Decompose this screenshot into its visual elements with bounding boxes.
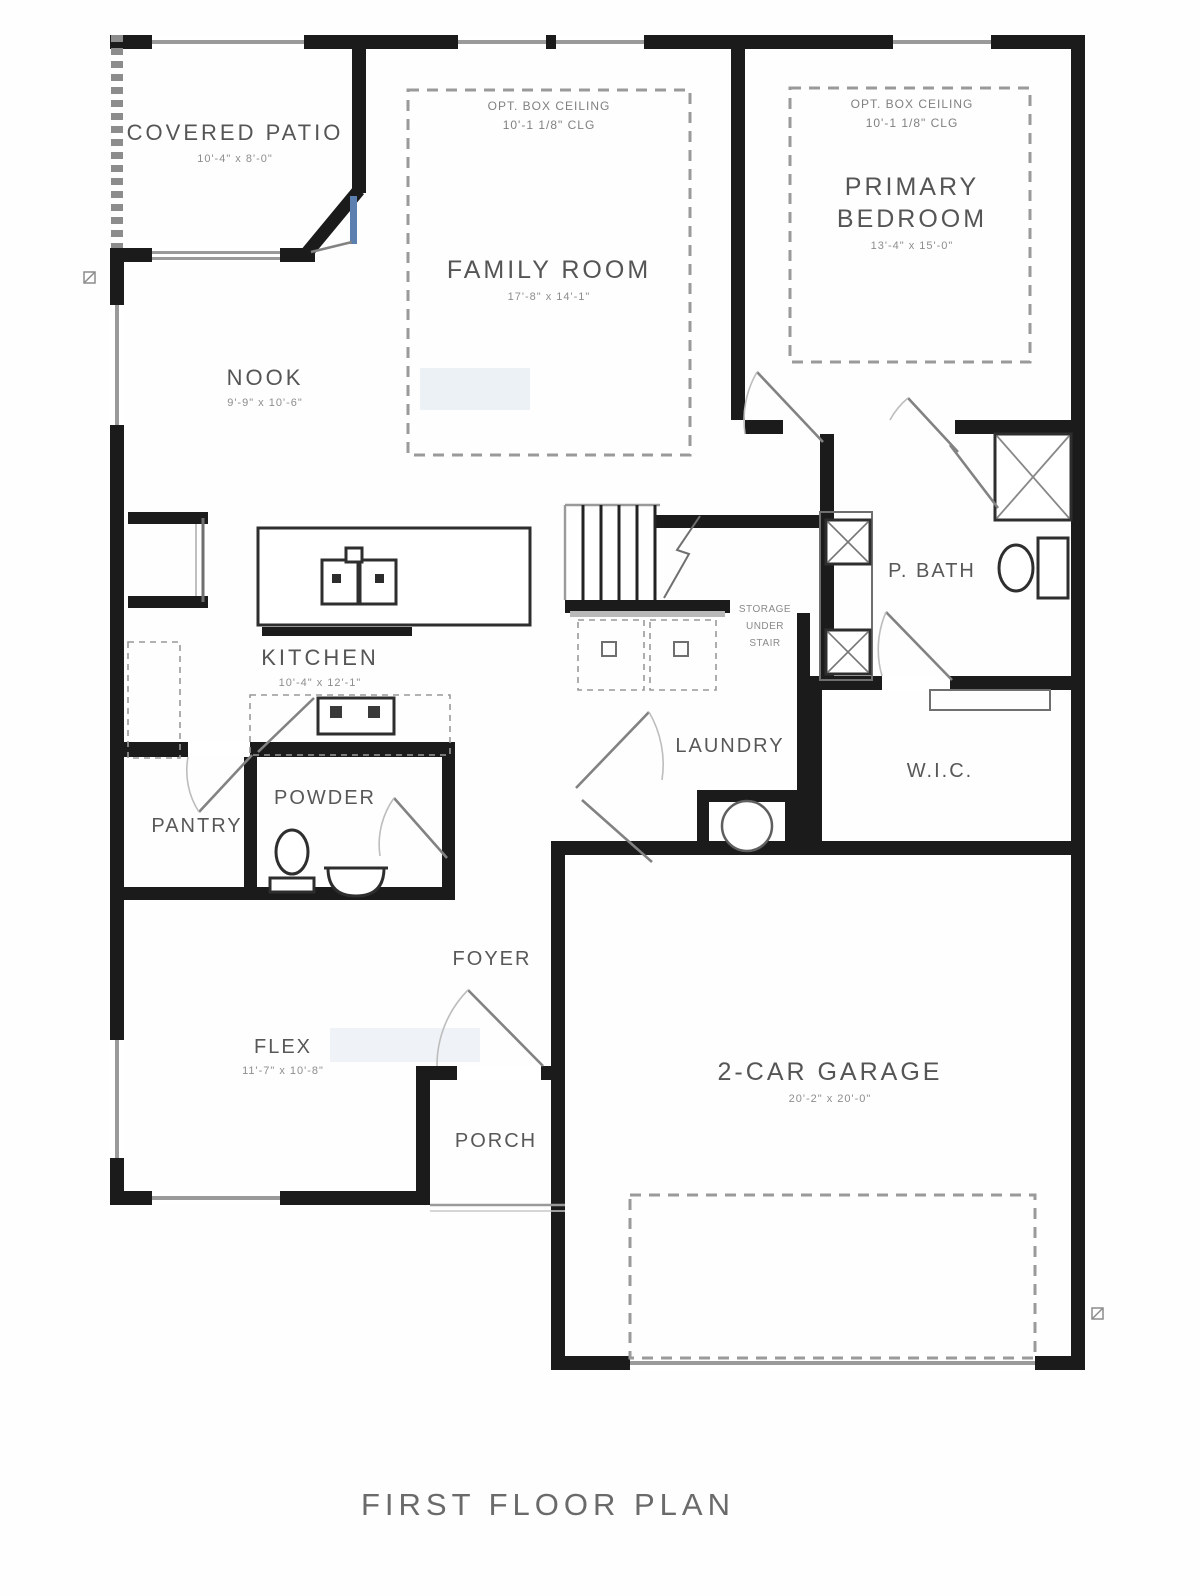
window-flex xyxy=(115,1040,119,1158)
pantry-label: PANTRY xyxy=(151,815,242,837)
flex-label: FLEX xyxy=(254,1036,312,1058)
powder-toilet xyxy=(270,830,314,892)
laundry-fixtures xyxy=(570,611,725,690)
wall-right xyxy=(1071,35,1085,1370)
laundry-counter xyxy=(570,611,725,617)
garage-door-outline xyxy=(630,1195,1035,1358)
range xyxy=(318,698,394,734)
pantry-door-opening xyxy=(188,742,250,757)
garage-door-header xyxy=(630,1361,1035,1365)
shower-door xyxy=(950,445,998,508)
covered-patio-structure xyxy=(110,35,366,262)
wall-garage-left xyxy=(551,855,565,1370)
window-family-left xyxy=(458,40,546,44)
covered-patio-label: COVERED PATIO xyxy=(127,120,344,145)
vanity-sink-2 xyxy=(826,630,870,674)
wic-shelf xyxy=(930,690,1050,710)
primary-bedroom-label-2: BEDROOM xyxy=(837,205,987,233)
kitchen-fixtures xyxy=(128,512,530,758)
pantry-door xyxy=(187,755,252,812)
patio-door-leaf xyxy=(350,196,357,244)
window-flex-front xyxy=(152,1196,280,1200)
nook-label: NOOK xyxy=(227,365,304,390)
nook-dim: 9'-9" x 10'-6" xyxy=(227,397,303,409)
wic-label: W.I.C. xyxy=(907,760,973,782)
primary-bedroom-label-1: PRIMARY xyxy=(845,173,979,201)
dryer-mark xyxy=(674,642,688,656)
primary-ceiling-note-1: OPT. BOX CEILING xyxy=(851,97,974,111)
garage-dim: 20'-2" x 20'-0" xyxy=(789,1093,872,1105)
section-marker-left xyxy=(84,272,95,283)
window-patio-top xyxy=(152,40,304,44)
wall-patio-right xyxy=(352,35,366,193)
water-heater xyxy=(722,801,772,851)
p-bath-label: P. BATH xyxy=(888,560,976,582)
stair-break-line xyxy=(664,516,700,598)
powder-label: POWDER xyxy=(274,787,376,809)
plan-title: FIRST FLOOR PLAN xyxy=(361,1487,735,1522)
family-ceiling-note-1: OPT. BOX CEILING xyxy=(488,99,611,113)
wall-pantry-powder-top xyxy=(110,742,455,757)
wall-wic-left xyxy=(808,690,822,855)
door-swings xyxy=(187,372,998,1066)
wall-pantry-powder-divider xyxy=(244,757,257,900)
floor-plan-page: COVERED PATIO 10'-4" x 8'-0" OPT. BOX CE… xyxy=(0,0,1200,1596)
powder-fixtures xyxy=(270,830,388,896)
storage-note-2: UNDER xyxy=(746,621,784,632)
foyer-label: FOYER xyxy=(453,948,532,970)
shower xyxy=(995,434,1071,520)
porch-slab xyxy=(430,1205,565,1211)
porch-label: PORCH xyxy=(455,1130,537,1152)
exterior-walls xyxy=(110,35,1085,1370)
wall-powder-right xyxy=(442,742,455,900)
wall-laundry-right xyxy=(797,613,810,853)
window-nook xyxy=(115,305,119,425)
wall-family-primary-divider xyxy=(731,35,745,420)
refrigerator-nook xyxy=(128,512,208,608)
washer-mark xyxy=(602,642,616,656)
wall-wh-niche-right xyxy=(785,790,797,850)
counter-left-outline xyxy=(128,642,180,758)
wall-hall-stub xyxy=(745,420,783,434)
wall-bath-top xyxy=(955,420,1085,434)
bath-toilet xyxy=(999,538,1068,598)
vanity-sink-1 xyxy=(826,520,870,564)
family-room-dim: 17'-8" x 14'-1" xyxy=(508,291,591,303)
laundry-label: LAUNDRY xyxy=(675,735,784,757)
laundry-door xyxy=(576,712,663,788)
front-door-opening xyxy=(457,1066,541,1080)
storage-note-3: STAIR xyxy=(749,638,780,649)
storage-note-1: STORAGE xyxy=(739,604,791,615)
garage-label: 2-CAR GARAGE xyxy=(718,1058,943,1086)
sliding-glass-door xyxy=(152,257,280,260)
primary-ceiling-note-2: 10'-1 1/8" CLG xyxy=(866,116,959,130)
family-ceiling-note-2: 10'-1 1/8" CLG xyxy=(503,118,596,132)
kitchen-dim: 10'-4" x 12'-1" xyxy=(279,677,362,689)
kitchen-label: KITCHEN xyxy=(261,645,379,670)
wall-stair-top xyxy=(655,515,820,528)
wic-door-opening xyxy=(882,676,950,690)
island-seating-edge xyxy=(262,627,412,636)
window-primary xyxy=(893,40,991,44)
primary-hall-door xyxy=(890,398,958,452)
primary-bath-fixtures xyxy=(820,434,1071,680)
floor-plan-drawing: COVERED PATIO 10'-4" x 8'-0" OPT. BOX CE… xyxy=(0,0,1200,1596)
primary-bedroom-dim: 13'-4" x 15'-0" xyxy=(871,240,954,252)
wall-porch-left xyxy=(416,1080,430,1205)
flex-dim: 11'-7" x 10'-8" xyxy=(242,1065,324,1077)
window-family-right xyxy=(556,40,644,44)
wic-door xyxy=(878,612,952,680)
section-marker-right xyxy=(1092,1308,1103,1319)
family-room-label: FAMILY ROOM xyxy=(447,256,651,284)
powder-door xyxy=(379,798,447,858)
covered-patio-dim: 10'-4" x 8'-0" xyxy=(197,153,273,165)
